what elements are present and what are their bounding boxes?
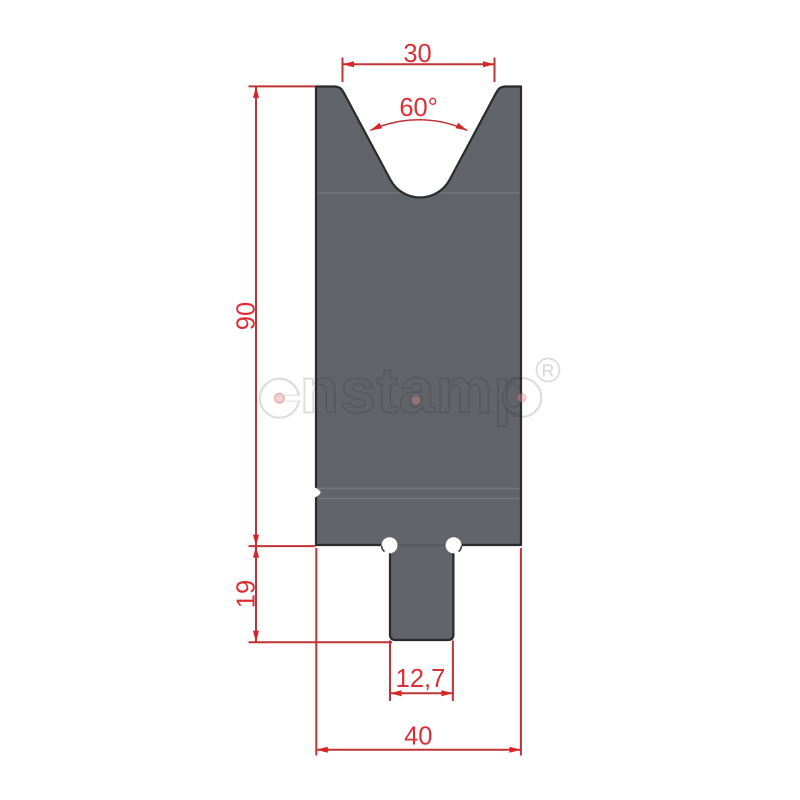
svg-text:40: 40 — [404, 723, 432, 751]
svg-text:nstamp: nstamp — [300, 355, 534, 427]
svg-text:60°: 60° — [399, 94, 438, 122]
svg-text:90: 90 — [233, 302, 261, 330]
svg-text:19: 19 — [233, 580, 261, 608]
svg-text:12,7: 12,7 — [396, 665, 446, 693]
svg-text:30: 30 — [403, 40, 431, 68]
svg-text:R: R — [542, 361, 555, 381]
